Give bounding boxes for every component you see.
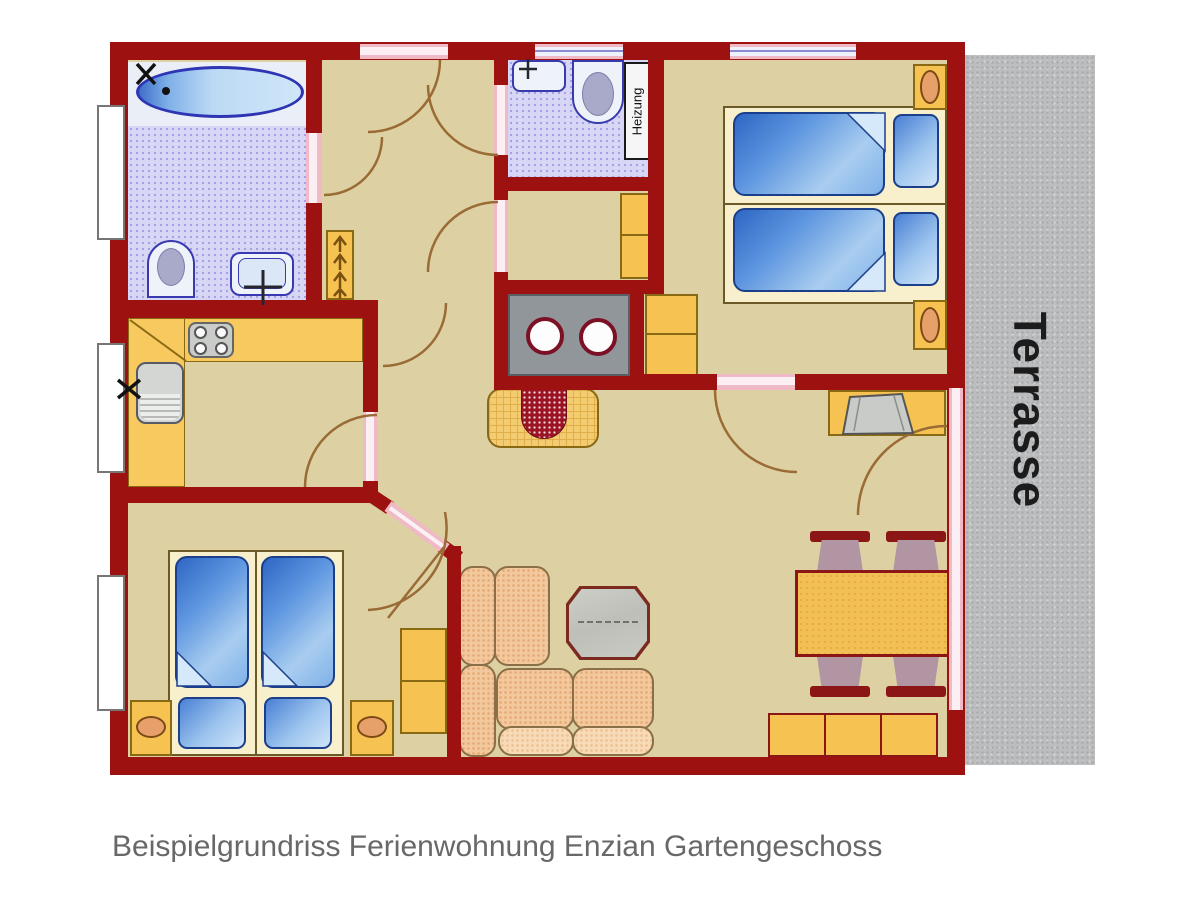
cooktop-burner-1 xyxy=(194,326,207,339)
double-bed-pillow-top xyxy=(893,114,939,188)
dining-chair-4-back xyxy=(886,686,946,697)
coffee-table-grain xyxy=(578,621,638,623)
wall-outer-bottom xyxy=(110,757,965,775)
twin-mattress-left xyxy=(175,556,249,688)
bathroom-door xyxy=(306,133,322,203)
plan-caption: Beispielgrundriss Ferienwohnung Enzian G… xyxy=(112,830,882,864)
double-bed-mattress-top xyxy=(733,112,885,196)
wall-bed1-bottom-right xyxy=(795,374,947,390)
twin-pillow-left xyxy=(178,697,246,749)
dining-chair-3 xyxy=(817,656,863,688)
twin-bed-divider xyxy=(255,550,257,756)
sofa-back-2 xyxy=(459,664,496,757)
wall-wc-left-a xyxy=(494,60,508,85)
double-bed-pillow-bottom xyxy=(893,212,939,286)
bathroom-sink-basin xyxy=(238,258,286,289)
kitchen-door xyxy=(363,412,378,481)
wall-niche-bottom xyxy=(494,376,644,390)
wc-window xyxy=(535,44,623,59)
bedroom2-window xyxy=(97,575,125,711)
sofa-front-right xyxy=(572,726,654,756)
sofa-seat-right xyxy=(572,668,654,730)
terrace-label: Terrasse xyxy=(1003,312,1057,508)
bedroom1-window xyxy=(730,44,856,59)
storage-cabinet-divider xyxy=(622,234,648,236)
terrace-area: Terrasse xyxy=(965,55,1095,765)
wall-kitchen-right-upper xyxy=(363,318,378,412)
wall-niche-top xyxy=(494,280,664,294)
wall-wc-bottom xyxy=(494,177,664,191)
bedroom2-nightstand-right-lamp xyxy=(357,716,387,738)
storage-cabinet xyxy=(620,193,650,279)
dining-chair-4 xyxy=(893,656,939,688)
bedroom1-wardrobe-divider xyxy=(647,333,696,335)
wall-kitchen-top xyxy=(128,300,378,318)
wall-bedroom2-right xyxy=(447,546,461,757)
sideboard xyxy=(768,713,938,757)
twin-pillow-right xyxy=(264,697,332,749)
storage-door xyxy=(494,200,508,272)
cooktop-burner-3 xyxy=(194,342,207,355)
wall-bath-hall-upper xyxy=(306,60,322,133)
double-bed-divider xyxy=(723,203,947,205)
sofa-corner-cushion xyxy=(494,566,550,666)
dining-table xyxy=(795,570,950,657)
kitchen-window xyxy=(97,343,125,473)
bedroom1-wardrobe xyxy=(645,294,698,376)
stove-burner-right xyxy=(579,318,617,356)
wc-toilet-seat xyxy=(582,72,614,116)
terrace-door-window xyxy=(949,388,963,710)
dining-chair-1 xyxy=(817,540,863,572)
wall-wc-bed1 xyxy=(648,60,664,294)
sofa-seat-left xyxy=(496,668,574,730)
tv-stand xyxy=(828,390,946,436)
dining-chair-2 xyxy=(893,540,939,572)
dining-chair-3-back xyxy=(810,686,870,697)
floor-plan-page: Heizung xyxy=(0,0,1200,900)
heating-closet-label: Heizung xyxy=(624,62,650,160)
kitchen-sink-drainer xyxy=(140,394,180,420)
bedroom2-nightstand-left-lamp xyxy=(136,716,166,738)
heating-label-text: Heizung xyxy=(630,87,645,135)
wall-niche-left xyxy=(494,280,508,390)
coffee-table xyxy=(566,586,650,660)
cooktop-burner-2 xyxy=(215,326,228,339)
double-bed-mattress-bottom xyxy=(733,208,885,292)
wc-sink xyxy=(512,60,566,92)
bathroom-window xyxy=(97,105,125,240)
sideboard-divider-2 xyxy=(880,715,882,755)
twin-mattress-right xyxy=(261,556,335,688)
bedroom2-wardrobe-divider xyxy=(402,680,445,682)
sideboard-divider-1 xyxy=(824,715,826,755)
wall-kitchen-bottom xyxy=(128,487,378,503)
entrance-door xyxy=(360,44,448,59)
toilet-seat xyxy=(157,248,185,286)
bedroom1-door xyxy=(717,374,795,390)
bathtub xyxy=(136,66,304,118)
cooktop-burner-4 xyxy=(215,342,228,355)
wc-door xyxy=(494,85,508,155)
stove-burner-left xyxy=(526,317,564,355)
wall-bath-hall-lower xyxy=(306,203,322,302)
nightstand-bottom-lamp xyxy=(920,307,940,343)
sofa-back-1 xyxy=(459,566,496,666)
nightstand-top-lamp xyxy=(920,70,940,104)
wall-bed1-bottom-left xyxy=(644,374,717,390)
sofa-front-left xyxy=(498,726,574,756)
hall-radiator xyxy=(326,230,354,300)
hearth-opening xyxy=(521,389,567,439)
